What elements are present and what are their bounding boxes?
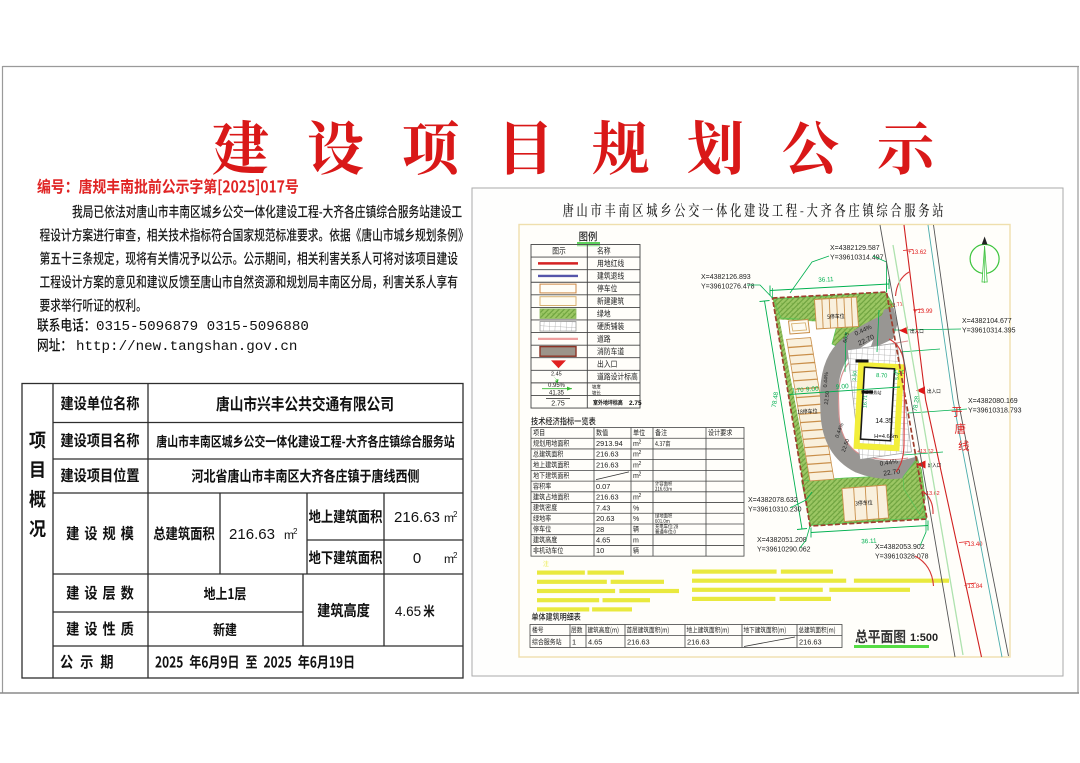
svg-text:Y=39610314.497: Y=39610314.497 xyxy=(830,255,884,262)
svg-text:216.63: 216.63 xyxy=(799,638,822,647)
svg-text:28: 28 xyxy=(596,525,604,534)
svg-text:+13.62: +13.62 xyxy=(908,250,927,256)
svg-text:+13.62: +13.62 xyxy=(923,491,940,497)
svg-text:36.11: 36.11 xyxy=(818,276,834,284)
svg-text:Y=39610314.395: Y=39610314.395 xyxy=(962,328,1016,335)
svg-text:2: 2 xyxy=(639,472,642,478)
svg-text:216.63: 216.63 xyxy=(596,493,619,502)
svg-text:41.35: 41.35 xyxy=(549,391,565,397)
svg-text:2.75: 2.75 xyxy=(551,400,565,407)
svg-text:Y=39610318.793: Y=39610318.793 xyxy=(968,408,1022,415)
svg-text:X=4382129.587: X=4382129.587 xyxy=(830,245,880,252)
svg-text:8.70: 8.70 xyxy=(876,373,888,380)
svg-text:14.35: 14.35 xyxy=(875,418,893,425)
svg-text:216.63: 216.63 xyxy=(394,509,440,526)
svg-text:2: 2 xyxy=(639,461,642,467)
svg-text:1:500: 1:500 xyxy=(910,632,938,644)
svg-text:X=4382126.893: X=4382126.893 xyxy=(701,274,751,281)
svg-text:http://new.tangshan.gov.cn: http://new.tangshan.gov.cn xyxy=(76,339,297,355)
svg-text:%: % xyxy=(633,505,639,512)
svg-text:2913.94: 2913.94 xyxy=(596,439,623,448)
svg-text:2: 2 xyxy=(639,493,642,499)
svg-text:3.50: 3.50 xyxy=(852,371,859,382)
svg-text:16.71: 16.71 xyxy=(863,395,870,408)
svg-text:2: 2 xyxy=(639,450,642,456)
svg-text:216.63: 216.63 xyxy=(596,460,619,469)
svg-text:4.65: 4.65 xyxy=(395,604,421,619)
svg-text:X=4382053.902: X=4382053.902 xyxy=(875,544,925,551)
svg-text:22.50: 22.50 xyxy=(824,391,831,405)
svg-text:0.07: 0.07 xyxy=(596,482,610,491)
svg-text:X=4382104.677: X=4382104.677 xyxy=(962,318,1012,325)
svg-text:Y=39610310.230: Y=39610310.230 xyxy=(748,507,802,514)
svg-text:1.70: 1.70 xyxy=(792,388,805,395)
svg-text:9.00: 9.00 xyxy=(836,383,850,391)
svg-text:0315-5096879 0315-5096880: 0315-5096879 0315-5096880 xyxy=(96,319,309,335)
svg-text:1: 1 xyxy=(572,638,576,647)
svg-text:2: 2 xyxy=(639,440,642,446)
svg-text:X=4382051.208: X=4382051.208 xyxy=(757,537,807,544)
svg-text:216.63: 216.63 xyxy=(596,450,619,459)
svg-text:%: % xyxy=(633,516,639,523)
svg-text:216.63: 216.63 xyxy=(229,526,275,543)
svg-text:2.75: 2.75 xyxy=(629,400,642,407)
svg-text:2.45: 2.45 xyxy=(551,372,562,378)
svg-text:216.63: 216.63 xyxy=(687,638,710,647)
svg-text:10: 10 xyxy=(596,546,604,555)
svg-text:2: 2 xyxy=(293,527,298,536)
svg-text:Y=39610276.478: Y=39610276.478 xyxy=(701,284,755,291)
svg-text:m: m xyxy=(633,538,639,545)
svg-text:9.00: 9.00 xyxy=(806,386,820,394)
svg-text:2: 2 xyxy=(453,510,458,519)
svg-text:X=4382080.169: X=4382080.169 xyxy=(968,398,1018,405)
svg-text:X=4382078.632: X=4382078.632 xyxy=(748,497,798,504)
svg-text:216.63: 216.63 xyxy=(627,638,650,647)
svg-text:0: 0 xyxy=(413,550,421,567)
svg-text:2: 2 xyxy=(453,551,458,560)
svg-text:H=4.65m: H=4.65m xyxy=(874,434,898,440)
svg-text:5.0: 5.0 xyxy=(895,372,901,380)
svg-text:20.63: 20.63 xyxy=(596,514,615,523)
svg-text:7.43: 7.43 xyxy=(596,503,610,512)
svg-text:4.65: 4.65 xyxy=(588,638,602,647)
svg-text:Y=39610290.062: Y=39610290.062 xyxy=(757,547,811,554)
svg-text:4.65: 4.65 xyxy=(596,536,610,545)
